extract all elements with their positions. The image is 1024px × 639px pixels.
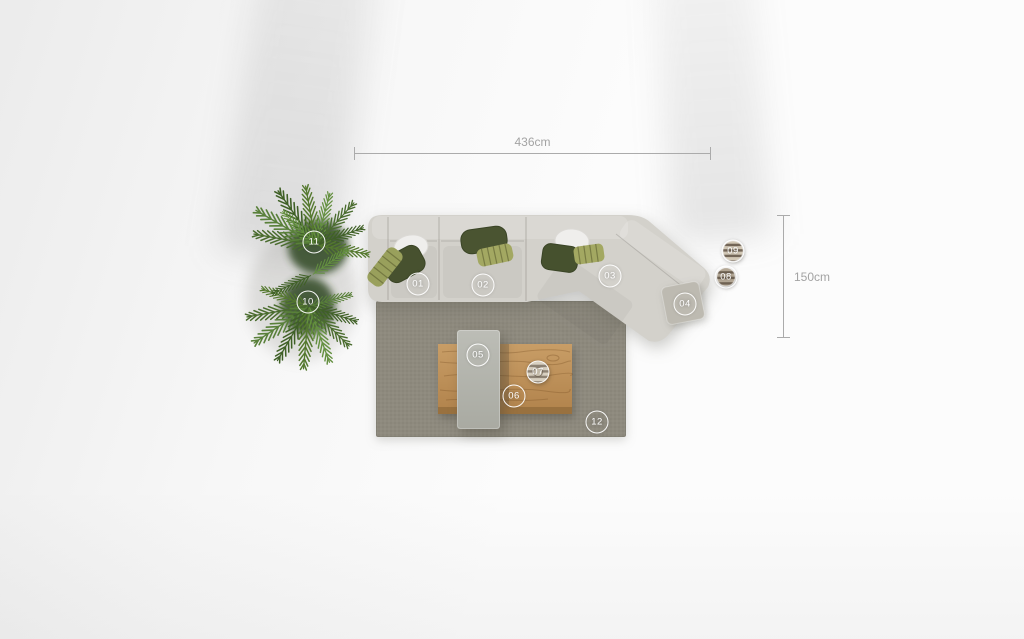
marker-01-sofa-module[interactable]: 01 [407,273,430,296]
marker-07-bowl[interactable]: 07 [527,361,550,384]
dimension-tick-left [354,147,355,160]
dimension-horizontal-label: 436cm [354,135,711,149]
dimension-horizontal-line [354,153,711,154]
dimension-vertical-line [783,215,784,338]
dimension-tick-top [777,215,790,216]
dimension-vertical-label: 150cm [794,270,830,284]
marker-06-wood-table[interactable]: 06 [503,385,526,408]
marker-03-chaise-module[interactable]: 03 [599,265,622,288]
dimension-tick-right [710,147,711,160]
marker-12-rug[interactable]: 12 [586,411,609,434]
marker-10-plant[interactable]: 10 [297,291,320,314]
marker-04-ottoman-table[interactable]: 04 [674,293,697,316]
marker-05-concrete-table[interactable]: 05 [467,344,490,367]
marker-02-sofa-module[interactable]: 02 [472,274,495,297]
pillow-green-3 [540,243,579,274]
marker-11-plant[interactable]: 11 [303,231,326,254]
furniture-top-view-render: 436cm 150cm 01 02 03 04 05 06 07 08 09 1… [0,0,1024,639]
dimension-vertical: 150cm [777,215,790,338]
marker-08-pouf[interactable]: 08 [715,266,738,289]
dimension-horizontal: 436cm [354,135,711,161]
room-scene [0,0,1024,639]
marker-09-pouf[interactable]: 09 [722,240,745,263]
dimension-tick-bottom [777,337,790,338]
